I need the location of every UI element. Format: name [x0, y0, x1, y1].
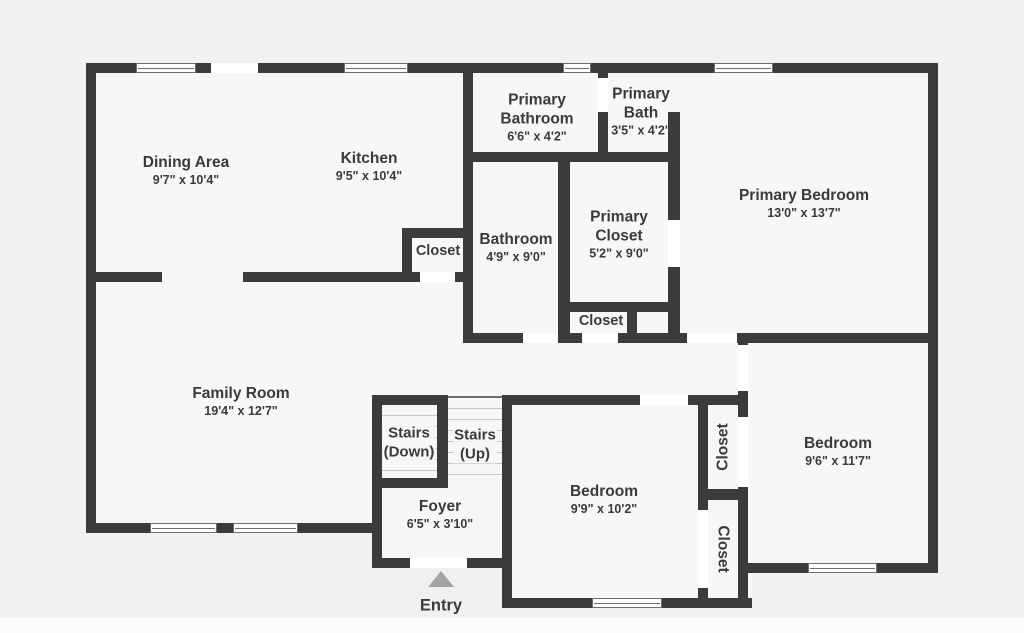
room-label-bedroom-right: Bedroom 9'6" x 11'7": [804, 434, 872, 470]
bottom-margin: [0, 618, 1024, 633]
room-dimensions: 5'2" x 9'0": [589, 246, 649, 263]
room-name: Closet: [579, 313, 623, 331]
room-label-kitchen: Kitchen 9'5" x 10'4": [336, 149, 402, 185]
room-label-closet-bedroom-right: Closet: [713, 423, 732, 470]
wall: [558, 152, 570, 343]
window-icon: [136, 63, 196, 73]
room-label-foyer: Foyer 6'5" x 3'10": [407, 497, 473, 533]
entry-label: Entry: [420, 597, 462, 616]
wall: [86, 63, 96, 533]
room-name: Closet: [416, 243, 460, 261]
room-label-closet-hall: Closet: [579, 313, 623, 331]
window-icon: [808, 563, 877, 573]
room-label-stairs-up: Stairs (Up): [453, 426, 497, 463]
wall: [437, 395, 448, 488]
room-label-primary-bath: Primary Bath 3'5" x 4'2": [608, 84, 674, 139]
door-opening: [738, 345, 748, 391]
wall: [463, 152, 680, 162]
stairs-up-cut-line: [448, 396, 502, 398]
room-name: Stairs: [388, 424, 430, 443]
room-name: (Up): [460, 445, 490, 464]
room-dimensions: 6'6" x 4'2": [507, 129, 567, 146]
room-label-closet-kitchen: Closet: [416, 243, 460, 261]
wall: [558, 302, 680, 312]
room-name: Primary Bedroom: [739, 186, 869, 205]
door-opening: [738, 417, 748, 487]
entry-arrow-icon: [428, 571, 454, 587]
wall: [86, 272, 162, 282]
room-dimensions: 3'5" x 4'2": [611, 123, 671, 140]
door-opening: [420, 272, 455, 282]
wall: [463, 63, 473, 343]
room-name: Bathroom: [479, 230, 552, 249]
room-label-family-room: Family Room 19'4" x 12'7": [192, 384, 289, 420]
room-name: Primary Bath: [608, 84, 674, 122]
room-dimensions: 6'5" x 3'10": [407, 516, 473, 533]
entry-door-opening: [410, 558, 467, 568]
window-icon: [592, 598, 662, 608]
room-label-bathroom: Bathroom 4'9" x 9'0": [479, 230, 552, 266]
room-name: Closet: [713, 525, 732, 572]
room-dimensions: 9'9" x 10'2": [571, 501, 637, 518]
floor-plan: Dining Area 9'7" x 10'4" Kitchen 9'5" x …: [0, 0, 1024, 633]
door-opening: [523, 333, 558, 343]
room-label-stairs-down: Stairs (Down): [383, 424, 436, 461]
room-dimensions: 9'7" x 10'4": [153, 172, 219, 189]
room-label-primary-bathroom: Primary Bathroom 6'6" x 4'2": [495, 90, 579, 145]
room-dimensions: 4'9" x 9'0": [486, 249, 546, 266]
room-name: Family Room: [192, 384, 289, 403]
wall: [928, 63, 938, 573]
room-name: Kitchen: [341, 149, 398, 168]
door-opening: [598, 78, 608, 112]
window-icon: [150, 523, 217, 533]
room-name: Primary Bathroom: [495, 90, 579, 128]
wall: [402, 228, 412, 282]
window-icon: [714, 63, 773, 73]
room-name: Dining Area: [143, 153, 229, 172]
door-opening: [687, 333, 737, 343]
room-dimensions: 9'6" x 11'7": [805, 453, 871, 470]
room-label-bedroom-mid: Bedroom 9'9" x 10'2": [570, 482, 638, 518]
wall: [502, 395, 512, 608]
room-label-primary-bedroom: Primary Bedroom 13'0" x 13'7": [739, 186, 869, 222]
room-label-dining-area: Dining Area 9'7" x 10'4": [143, 153, 229, 189]
door-opening: [211, 63, 258, 73]
room-label-closet-bedroom-mid: Closet: [713, 525, 732, 572]
window-icon: [233, 523, 298, 533]
room-dimensions: 9'5" x 10'4": [336, 168, 402, 185]
door-opening: [668, 220, 680, 267]
room-dimensions: 13'0" x 13'7": [767, 205, 840, 222]
room-dimensions: 19'4" x 12'7": [204, 403, 277, 420]
room-name: Primary Closet: [581, 207, 657, 245]
room-name: Foyer: [419, 497, 461, 516]
room-label-primary-closet: Primary Closet 5'2" x 9'0": [581, 207, 657, 262]
door-opening: [698, 510, 708, 588]
room-name: Bedroom: [804, 434, 872, 453]
wall: [402, 228, 473, 238]
wall: [502, 395, 748, 405]
room-name: Closet: [713, 423, 732, 470]
room-name: Bedroom: [570, 482, 638, 501]
room-name: Stairs: [454, 426, 496, 445]
door-opening: [640, 395, 688, 405]
wall: [627, 302, 637, 343]
window-icon: [344, 63, 408, 73]
room-name: (Down): [384, 443, 435, 462]
window-icon: [563, 63, 591, 73]
wall: [372, 478, 448, 488]
door-opening: [582, 333, 618, 343]
